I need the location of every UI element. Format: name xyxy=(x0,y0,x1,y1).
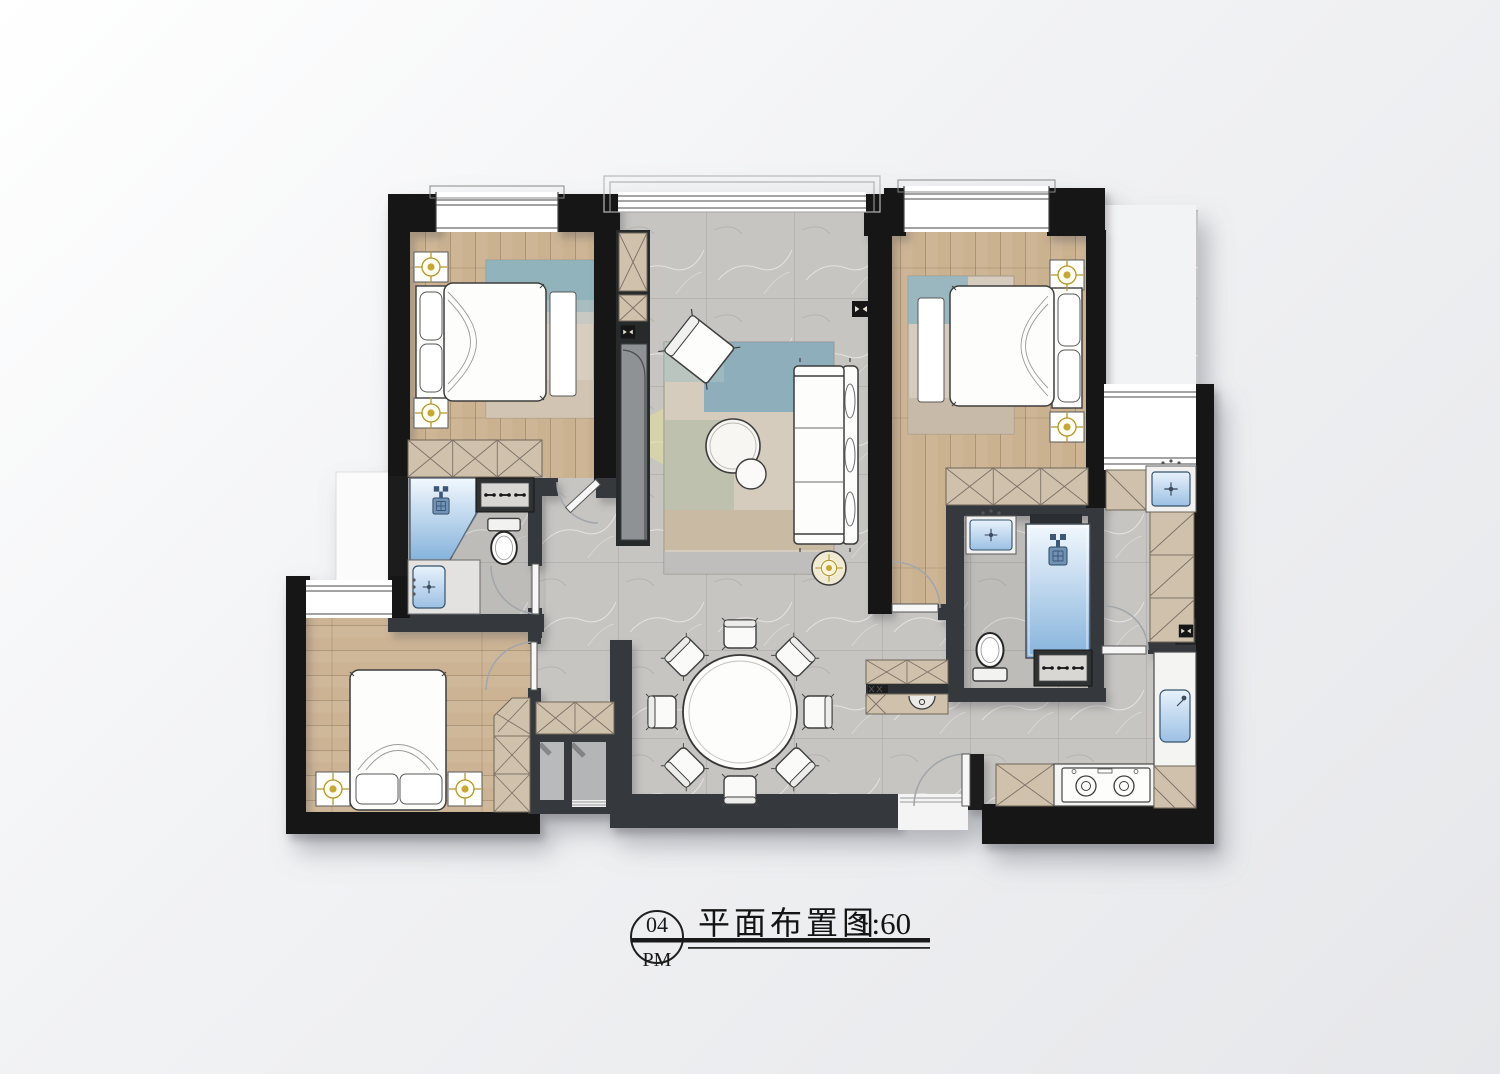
pillow xyxy=(400,774,442,804)
exterior-gap xyxy=(1104,205,1196,387)
basin-left xyxy=(408,560,480,614)
title-rule-thin xyxy=(688,947,930,949)
sofa-3-seat xyxy=(794,358,858,552)
floor-lamp xyxy=(812,551,846,585)
pillow xyxy=(420,344,442,392)
title-block: 04 PM 平面布置图 1:60 xyxy=(631,905,930,971)
wall-socket-icon xyxy=(621,326,635,339)
pillow xyxy=(420,292,442,340)
double-bed xyxy=(416,283,546,401)
pillow xyxy=(1058,350,1080,402)
bay-window-bedroom-tl xyxy=(430,186,564,232)
tv-wall-unit xyxy=(616,230,650,546)
double-bed xyxy=(950,286,1082,408)
pillow xyxy=(356,774,398,804)
floor-plan-sheet: 04 PM 平面布置图 1:60 xyxy=(0,0,1500,1074)
floor-plan-drawing: 04 PM 平面布置图 1:60 xyxy=(0,0,1500,1074)
corridor-cabinet xyxy=(1106,470,1146,510)
window-bedroom-bl xyxy=(306,580,392,618)
wardrobe-master xyxy=(946,468,1088,505)
dining-chair xyxy=(722,618,758,650)
tv-console xyxy=(621,344,647,540)
kitchen-base-cabinet xyxy=(996,764,1054,806)
toilet-left xyxy=(488,518,520,564)
window-utility-corridor xyxy=(1104,384,1196,470)
dining-chair xyxy=(646,694,678,730)
tall-cabinet-column xyxy=(1150,512,1194,642)
drawing-title: 平面布置图 xyxy=(698,905,878,941)
mattress xyxy=(444,283,546,401)
hall-cabinet xyxy=(536,702,614,734)
wardrobe-bedroom-tl xyxy=(408,440,542,477)
wardrobe-bedroom-bl xyxy=(494,698,530,812)
sideboard-washbasin xyxy=(866,660,948,714)
wall-socket-icon xyxy=(852,301,870,317)
side-table xyxy=(736,459,766,489)
balcony-window-living xyxy=(604,176,880,212)
dining-chair xyxy=(722,774,758,806)
vanity-cabinet-master xyxy=(1034,650,1092,686)
laundry-sink xyxy=(1146,459,1196,512)
wood-floor-master-entry xyxy=(886,470,948,612)
drawing-scale: 1:60 xyxy=(856,906,911,941)
bay-window-master xyxy=(898,180,1055,232)
shower-master xyxy=(1026,514,1090,658)
dining-chair xyxy=(802,694,834,730)
sheet-number: 04 xyxy=(646,912,668,937)
vanity-cabinet-left xyxy=(476,478,534,512)
kitchen-counter-stove xyxy=(1054,764,1156,806)
double-bed xyxy=(350,670,446,810)
bed-bench xyxy=(918,298,944,402)
mattress xyxy=(950,286,1054,406)
apartment-plan xyxy=(286,176,1214,844)
bed-bench xyxy=(550,292,576,396)
round-dining-table xyxy=(683,655,797,769)
sheet-label: PM xyxy=(643,949,672,971)
toilet-master xyxy=(973,633,1007,681)
basin-master xyxy=(966,509,1016,554)
pillow xyxy=(1058,294,1080,346)
appliance-panel-icon xyxy=(1179,625,1193,638)
kitchen-corner-cabinet xyxy=(1154,766,1196,808)
